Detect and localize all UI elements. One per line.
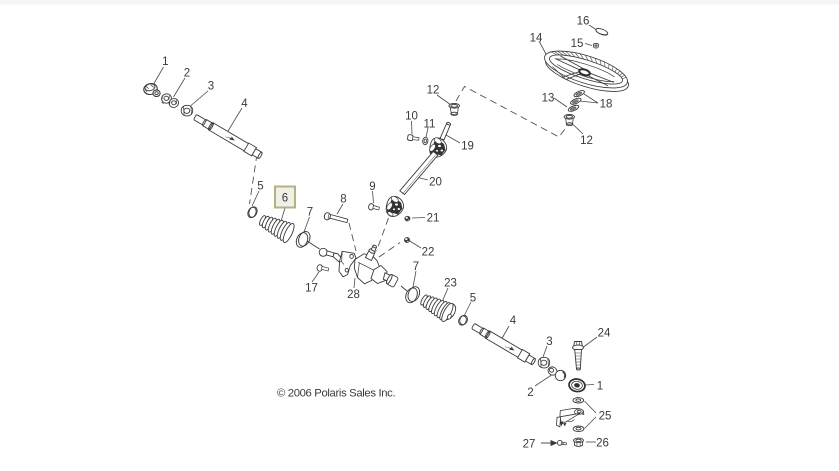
svg-text:12: 12: [580, 135, 593, 147]
svg-text:23: 23: [444, 278, 457, 290]
svg-text:3: 3: [208, 81, 214, 93]
svg-text:1: 1: [597, 381, 603, 393]
svg-text:18: 18: [600, 99, 613, 111]
svg-text:24: 24: [598, 328, 611, 340]
svg-text:13: 13: [542, 93, 555, 105]
svg-text:27: 27: [523, 439, 536, 451]
svg-text:1: 1: [162, 56, 168, 68]
svg-text:4: 4: [510, 315, 517, 327]
svg-text:26: 26: [596, 438, 609, 450]
svg-text:7: 7: [307, 207, 313, 219]
svg-text:8: 8: [340, 194, 346, 206]
svg-text:21: 21: [427, 213, 440, 225]
svg-text:16: 16: [577, 16, 590, 28]
svg-text:28: 28: [347, 289, 360, 301]
svg-text:4: 4: [241, 98, 248, 110]
svg-text:15: 15: [571, 38, 584, 50]
svg-text:25: 25: [599, 411, 612, 423]
svg-text:5: 5: [470, 293, 476, 305]
svg-text:2: 2: [527, 387, 533, 399]
svg-text:20: 20: [429, 177, 442, 189]
svg-text:7: 7: [413, 261, 419, 273]
svg-text:6: 6: [282, 193, 288, 205]
svg-text:3: 3: [546, 336, 552, 348]
svg-text:9: 9: [369, 181, 375, 193]
svg-text:17: 17: [305, 283, 318, 295]
svg-text:5: 5: [257, 181, 263, 193]
svg-text:22: 22: [422, 247, 435, 259]
svg-text:2: 2: [184, 68, 190, 80]
svg-text:14: 14: [530, 33, 543, 45]
svg-text:19: 19: [461, 141, 474, 153]
svg-text:12: 12: [427, 85, 440, 97]
svg-text:10: 10: [405, 111, 418, 123]
svg-text:11: 11: [424, 119, 436, 131]
svg-text:© 2006 Polaris Sales Inc.: © 2006 Polaris Sales Inc.: [277, 388, 395, 400]
